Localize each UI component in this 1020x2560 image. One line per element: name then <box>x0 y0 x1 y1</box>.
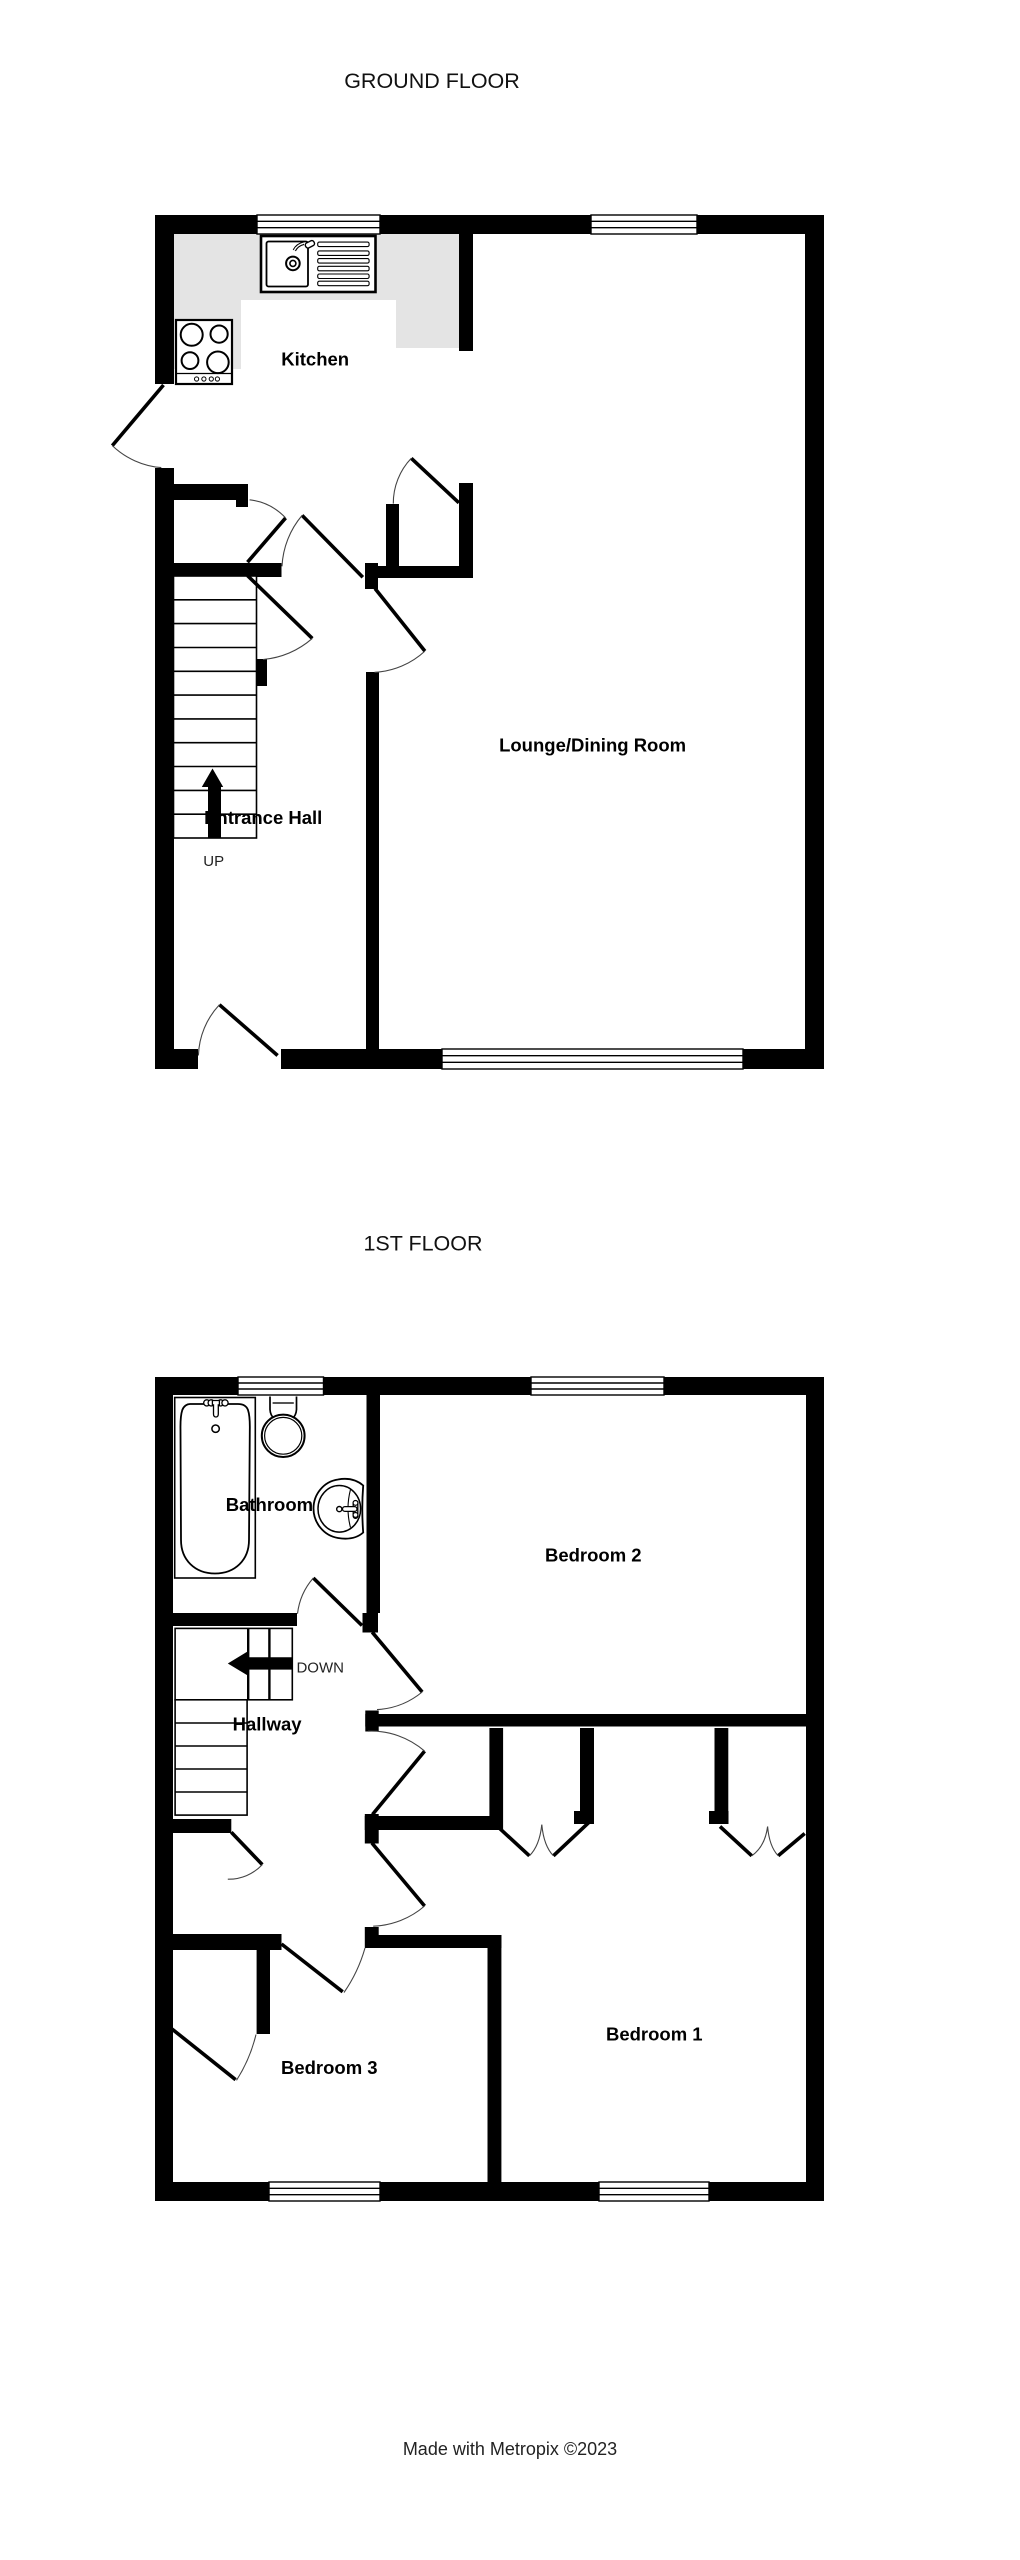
svg-text:Hallway: Hallway <box>233 1714 303 1735</box>
svg-text:Made with Metropix ©2023: Made with Metropix ©2023 <box>403 2439 617 2459</box>
svg-text:Entrance Hall: Entrance Hall <box>204 807 322 828</box>
svg-text:Bedroom 2: Bedroom 2 <box>545 1545 642 1566</box>
svg-text:Lounge/Dining Room: Lounge/Dining Room <box>499 735 686 756</box>
svg-text:Bedroom 3: Bedroom 3 <box>281 2057 378 2078</box>
svg-text:DOWN: DOWN <box>296 1659 344 1676</box>
svg-text:Bathroom: Bathroom <box>226 1494 313 1515</box>
svg-text:Kitchen: Kitchen <box>281 348 349 369</box>
svg-text:GROUND FLOOR: GROUND FLOOR <box>344 69 520 93</box>
svg-text:1ST FLOOR: 1ST FLOOR <box>363 1232 482 1256</box>
svg-text:UP: UP <box>203 853 224 870</box>
svg-text:Bedroom 1: Bedroom 1 <box>606 2023 703 2044</box>
